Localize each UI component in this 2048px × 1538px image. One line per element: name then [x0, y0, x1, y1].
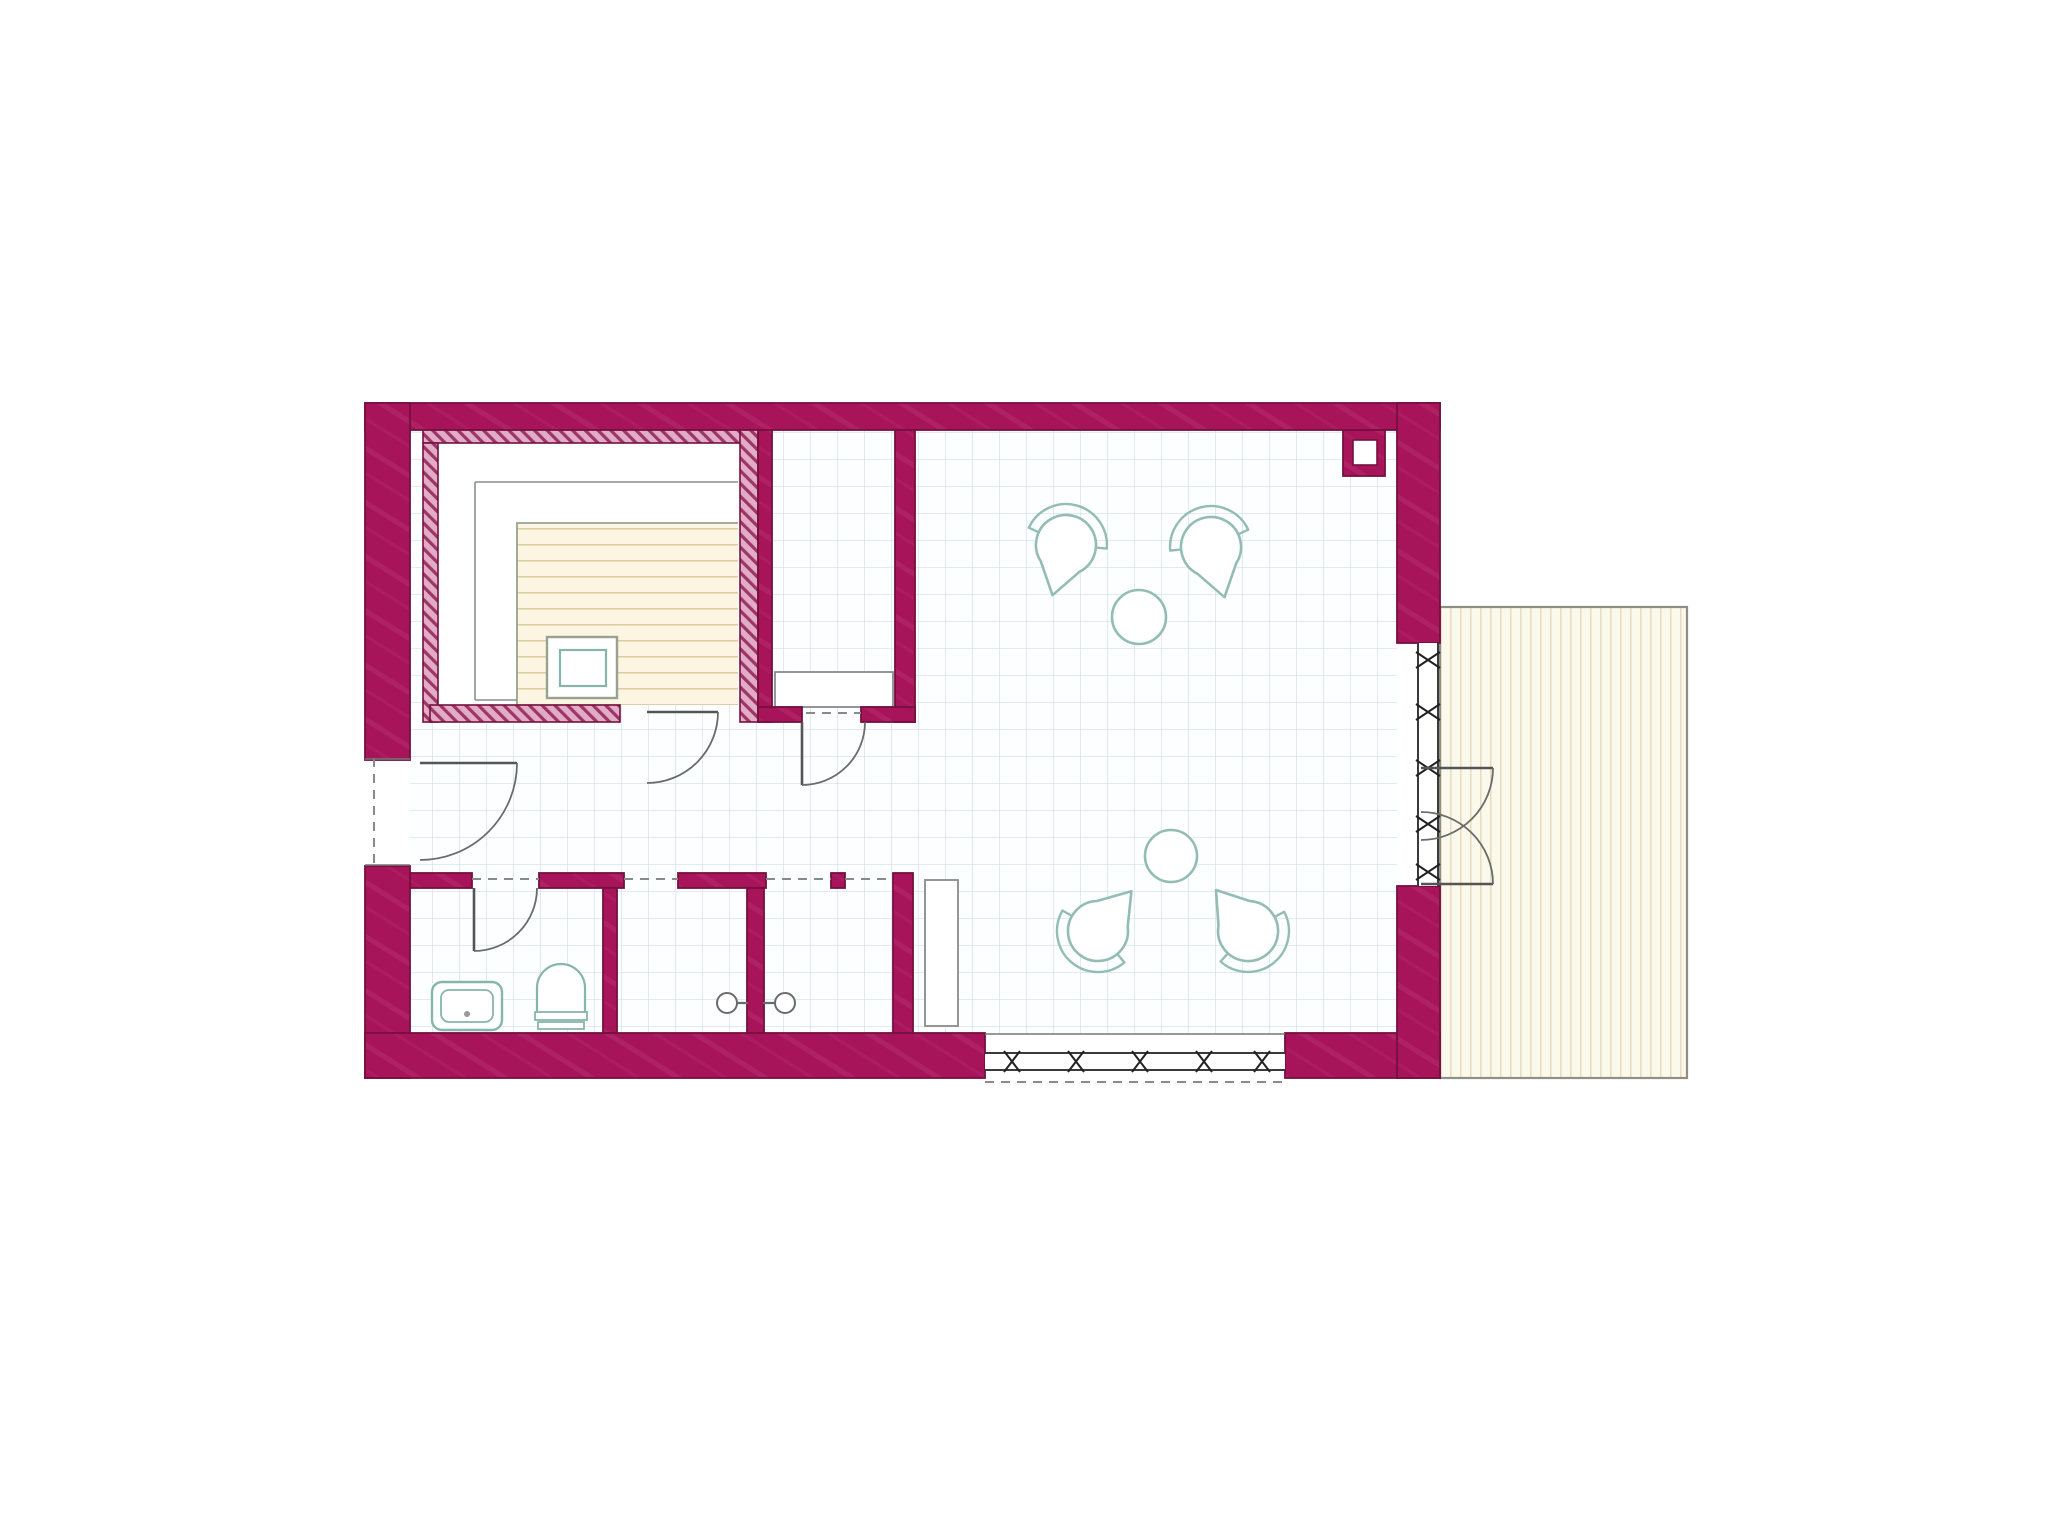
- sauna-room: [438, 443, 740, 705]
- bottom-rooms-wall-top-4: [831, 873, 845, 888]
- shower-partition-wall: [747, 888, 764, 1033]
- sauna-wall-right: [740, 428, 758, 722]
- sauna-wall-left: [423, 443, 438, 722]
- table-upper: [1112, 590, 1166, 644]
- changing-room-wall-left: [758, 430, 772, 722]
- changing-room-wall-right: [895, 430, 915, 722]
- outer-wall-right-lower: [1397, 886, 1440, 1078]
- bottom-rooms-wall-top-3: [678, 873, 766, 888]
- sauna-wall-bottom: [430, 705, 620, 722]
- sauna-stove-inner: [560, 650, 606, 686]
- table-lower: [1145, 830, 1197, 882]
- outer-wall-top: [365, 403, 1440, 430]
- bathroom-wall-right: [603, 888, 617, 1033]
- shower-head-right: [775, 993, 795, 1013]
- bottom-rooms-wall-top-2: [539, 873, 624, 888]
- flue-opening: [1353, 440, 1377, 465]
- floor-plan-canvas: [0, 0, 2048, 1538]
- bottom-rooms-wall-top-1: [410, 873, 472, 888]
- toilet-cistern-1: [535, 1012, 587, 1020]
- terrace-deck-surface: [1440, 607, 1687, 1078]
- main-room-bench: [925, 880, 958, 1026]
- outer-wall-bottom-left: [365, 1033, 985, 1078]
- changing-room-wall-stub-left: [758, 707, 802, 722]
- changing-room-wall-stub-right: [861, 707, 915, 722]
- outer-wall-left-upper: [365, 403, 410, 760]
- terrace-deck: [1440, 607, 1687, 1078]
- bottom-rooms-wall-right: [893, 873, 913, 1033]
- toilet-cistern-2: [538, 1022, 584, 1029]
- outer-wall-right-upper: [1397, 403, 1440, 643]
- sink-drain: [464, 1011, 470, 1017]
- toilet-bowl: [537, 964, 585, 1012]
- shower-head-left: [717, 993, 737, 1013]
- floor-plan-svg: [0, 0, 2048, 1538]
- changing-room-bench: [775, 672, 893, 707]
